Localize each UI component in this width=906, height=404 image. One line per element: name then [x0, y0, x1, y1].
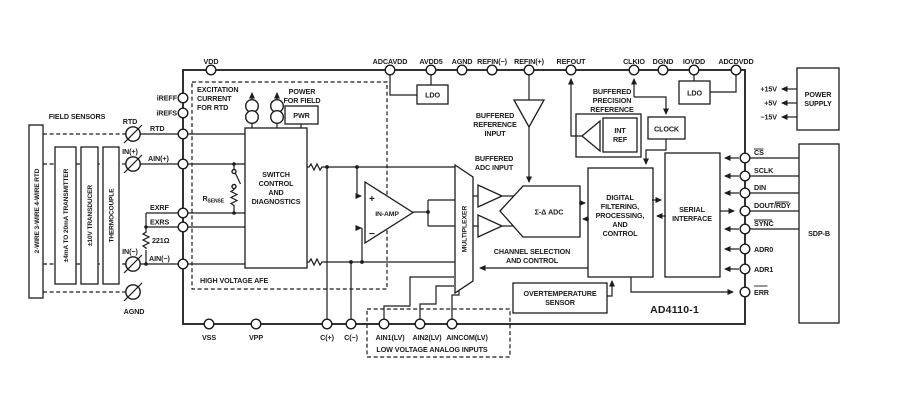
pin-agnd-top: AGND	[452, 57, 473, 75]
serial-interface-block: SERIAL INTERFACE	[665, 153, 720, 277]
terminal-in-minus: IN(−)	[122, 247, 142, 273]
overtemp-line1: OVERTEMPERATURE	[523, 289, 596, 298]
adc-buffer-bottom	[478, 215, 502, 237]
pin-vdd: VDD	[204, 57, 219, 75]
power-rails: +15V +5V −15V	[760, 85, 797, 122]
ldo-left-block: LDO	[390, 75, 448, 104]
in-amp-plus: +	[369, 194, 375, 205]
svg-text:SCLK: SCLK	[754, 166, 774, 175]
switch-line3: AND	[268, 188, 283, 197]
pin-ain-plus: AIN(+)	[148, 154, 188, 169]
sdp-block: SDP-B	[799, 144, 839, 323]
digital-line2: FILTERING,	[601, 202, 639, 211]
svg-text:AIN(+): AIN(+)	[148, 154, 169, 163]
field-sensors-label: FIELD SENSORS	[49, 112, 106, 121]
svg-text:DIN: DIN	[754, 183, 766, 192]
sdp-label: SDP-B	[808, 229, 830, 238]
terminal-in-plus-label: IN(+)	[122, 147, 138, 156]
digital-line5: CONTROL	[603, 229, 639, 238]
svg-text:ERR: ERR	[754, 288, 770, 297]
pin-ain-minus: AIN(−)	[149, 254, 188, 269]
terminal-rtd: RTD	[123, 117, 142, 143]
pin-ain1-lv: AIN1(LV)	[375, 319, 405, 342]
in-amp-label: IN-AMP	[375, 211, 399, 218]
svg-text:AGND: AGND	[452, 57, 473, 66]
pin-refout: REFOUT	[557, 57, 587, 75]
err-wire	[631, 277, 733, 292]
power-for-field-line1: POWER	[289, 87, 317, 96]
clock-section: CLOCK	[634, 79, 685, 164]
overtemp-line2: SENSOR	[545, 298, 576, 307]
analog-signal-path	[307, 164, 455, 319]
rail-m15v: −15V	[760, 113, 777, 122]
switch-line1: SWITCH	[262, 170, 290, 179]
chan-line2: AND CONTROL	[506, 256, 559, 265]
pin-refin-minus: REFIN(−)	[477, 57, 507, 75]
svg-text:iREFF: iREFF	[157, 94, 178, 103]
resistor-221-label: 221Ω	[152, 236, 170, 245]
lv-inputs-label: LOW VOLTAGE ANALOG INPUTS	[376, 345, 487, 354]
field-box-thermocouple-label: THERMOCOUPLE	[109, 188, 116, 243]
rail-p5v: +5V	[764, 99, 777, 108]
field-box-transducer-label: ±10V TRANSDUCER	[87, 185, 94, 246]
current-source-symbols	[246, 93, 284, 128]
digital-line4: AND	[612, 220, 627, 229]
svg-text:ADCAVDD: ADCAVDD	[373, 57, 408, 66]
terminal-agnd-label: AGND	[124, 307, 145, 316]
terminal-agnd: AGND	[124, 283, 145, 316]
buffered-adc-line2: ADC INPUT	[475, 163, 514, 172]
buf-ref-line1: BUFFERED	[476, 111, 514, 120]
pin-avdd5: AVDD5	[419, 57, 442, 75]
pin-c-plus: C(+)	[320, 319, 334, 342]
terminal-in-plus: IN(+)	[122, 147, 142, 173]
svg-text:CLKIO: CLKIO	[623, 57, 645, 66]
multiplexer-block: MULTIPLEXER	[455, 165, 473, 293]
pwr-label: PWR	[293, 111, 310, 120]
pin-vpp: VPP	[249, 319, 263, 342]
sigma-delta-adc-label: Σ-Δ ADC	[535, 208, 564, 217]
field-box-transmitter-label: ±4mA TO 20mA TRANSMITTER	[63, 168, 70, 262]
pin-adr1: ADR1	[740, 264, 773, 274]
svg-text:AIN1(LV): AIN1(LV)	[375, 333, 405, 342]
serial-line2: INTERFACE	[672, 214, 712, 223]
field-box-rtd-label: 2-WIRE 3-WIRE 4-WIRE RTD	[34, 168, 41, 253]
power-supply-line1: POWER	[805, 90, 833, 99]
pin-adcdvdd: ADCDVDD	[718, 57, 753, 75]
svg-text:VPP: VPP	[249, 333, 263, 342]
pin-refin-plus: REFIN(+)	[514, 57, 544, 75]
excitation-block: EXCITATION CURRENT FOR RTD POWER FOR FIE…	[197, 85, 321, 128]
pin-adcavdd: ADCAVDD	[373, 57, 408, 75]
digital-line1: DIGITAL	[606, 193, 634, 202]
svg-text:iREFS: iREFS	[156, 109, 177, 118]
clock-label: CLOCK	[654, 125, 680, 134]
in-amp-minus: −	[369, 229, 375, 240]
pin-irefs: iREFS	[156, 108, 187, 118]
svg-text:AVDD5: AVDD5	[419, 57, 442, 66]
lv-input-wires	[384, 277, 459, 319]
svg-text:DGND: DGND	[653, 57, 674, 66]
svg-text:EXRS: EXRS	[150, 218, 169, 227]
pin-iovdd: IOVDD	[683, 57, 705, 75]
power-for-field-line2: FOR FIELD	[283, 96, 320, 105]
svg-text:ADR0: ADR0	[754, 245, 773, 254]
svg-text:ADCDVDD: ADCDVDD	[718, 57, 753, 66]
terminal-in-minus-label: IN(−)	[122, 247, 138, 256]
switch-line2: CONTROL	[259, 179, 295, 188]
field-terminals: RTD IN(+) IN(−) AGND	[122, 117, 144, 316]
switch-line4: DIAGNOSTICS	[252, 197, 301, 206]
excitation-line3: FOR RTD	[197, 103, 228, 112]
pin-dgnd: DGND	[653, 57, 674, 75]
svg-text:REFOUT: REFOUT	[557, 57, 587, 66]
power-supply-line2: SUPPLY	[804, 99, 832, 108]
pin-c-minus: C(−)	[344, 319, 358, 342]
ad4110-block-diagram: FIELD SENSORS 2-WIRE 3-WIRE 4-WIRE RTD ±…	[0, 0, 906, 404]
channel-selection: CHANNEL SELECTION AND CONTROL	[480, 247, 588, 268]
svg-text:C(+): C(+)	[320, 333, 334, 342]
excitation-line1: EXCITATION	[197, 85, 238, 94]
part-number-label: AD4110-1	[650, 304, 699, 316]
hv-afe-label: HIGH VOLTAGE AFE	[200, 276, 268, 285]
int-ref-line1: INT	[614, 126, 626, 135]
pin-vss: VSS	[202, 319, 216, 342]
field-sensors-section: FIELD SENSORS 2-WIRE 3-WIRE 4-WIRE RTD ±…	[29, 112, 119, 298]
svg-text:RTD: RTD	[150, 124, 164, 133]
svg-text:EXRF: EXRF	[150, 203, 169, 212]
ref-buffer-triangle	[514, 100, 544, 127]
buf-ref-line3: INPUT	[484, 129, 506, 138]
pin-ireff: iREFF	[157, 93, 188, 103]
svg-text:IOVDD: IOVDD	[683, 57, 705, 66]
svg-text:VDD: VDD	[204, 57, 219, 66]
right-pins: CS SCLK DIN DOUT/RDY SYNC ADR0 ADR1 ERR	[720, 148, 799, 297]
svg-text:AINCOM(LV): AINCOM(LV)	[446, 333, 488, 342]
svg-text:REFIN(+): REFIN(+)	[514, 57, 544, 66]
buf-prec-line2: PRECISION	[593, 96, 632, 105]
pin-err: ERR	[740, 286, 770, 297]
top-pins: VDD ADCAVDD AVDD5 AGND REFIN(−) REFIN(+)…	[204, 57, 754, 75]
ldo-right-label: LDO	[687, 89, 702, 98]
svg-text:VSS: VSS	[202, 333, 216, 342]
pin-aincom-lv: AINCOM(LV)	[446, 319, 488, 342]
serial-line1: SERIAL	[679, 205, 705, 214]
in-amp-block: + − IN-AMP	[365, 182, 413, 243]
svg-text:REFIN(−): REFIN(−)	[477, 57, 507, 66]
buf-ref-line2: REFERENCE	[473, 120, 517, 129]
pin-clkio: CLKIO	[623, 57, 645, 75]
ldo-right-block: LDO	[679, 75, 736, 104]
switch-control-block: SWITCH CONTROL AND DIAGNOSTICS	[245, 128, 307, 268]
svg-text:AIN(−): AIN(−)	[149, 254, 170, 263]
serial-pin-arrows	[720, 158, 739, 269]
buf-prec-line1: BUFFERED	[593, 87, 631, 96]
ldo-left-label: LDO	[425, 91, 440, 100]
precision-reference-section: BUFFERED PRECISION REFERENCE INT REF	[571, 79, 641, 157]
rsense-branch: RSENSE	[202, 162, 240, 215]
pin-cs: CS	[740, 148, 764, 163]
pin-dout-rdy: DOUT/RDY	[740, 201, 791, 216]
svg-text:C(−): C(−)	[344, 333, 358, 342]
power-supply-block: POWER SUPPLY +15V +5V −15V	[760, 68, 839, 130]
buf-prec-line3: REFERENCE	[590, 105, 634, 114]
svg-text:AIN2(LV): AIN2(LV)	[412, 333, 442, 342]
chan-line1: CHANNEL SELECTION	[494, 247, 570, 256]
block-diagram-page: FIELD SENSORS 2-WIRE 3-WIRE 4-WIRE RTD ±…	[0, 0, 906, 404]
digital-block: DIGITAL FILTERING, PROCESSING, AND CONTR…	[588, 168, 653, 277]
pin-ain2-lv: AIN2(LV)	[412, 319, 442, 342]
multiplexer-label: MULTIPLEXER	[462, 206, 469, 253]
adc-section: BUFFERED ADC INPUT Σ-Δ ADC	[473, 154, 580, 237]
rsense-label: RSENSE	[202, 194, 224, 205]
left-pins: iREFF iREFS RTD AIN(+) EXRF EXRS 221Ω AI…	[148, 93, 188, 269]
adc-buffer-top	[478, 185, 502, 207]
pin-adr0: ADR0	[740, 244, 773, 254]
digital-line3: PROCESSING,	[596, 211, 645, 220]
overtemperature-block: OVERTEMPERATURE SENSOR	[513, 281, 612, 313]
rail-p15v: +15V	[760, 85, 777, 94]
int-ref-line2: REF	[613, 135, 628, 144]
terminal-rtd-label: RTD	[123, 117, 137, 126]
excitation-line2: CURRENT	[197, 94, 232, 103]
buffered-adc-line1: BUFFERED	[475, 154, 513, 163]
pin-din: DIN	[740, 183, 766, 198]
svg-text:ADR1: ADR1	[754, 265, 773, 274]
